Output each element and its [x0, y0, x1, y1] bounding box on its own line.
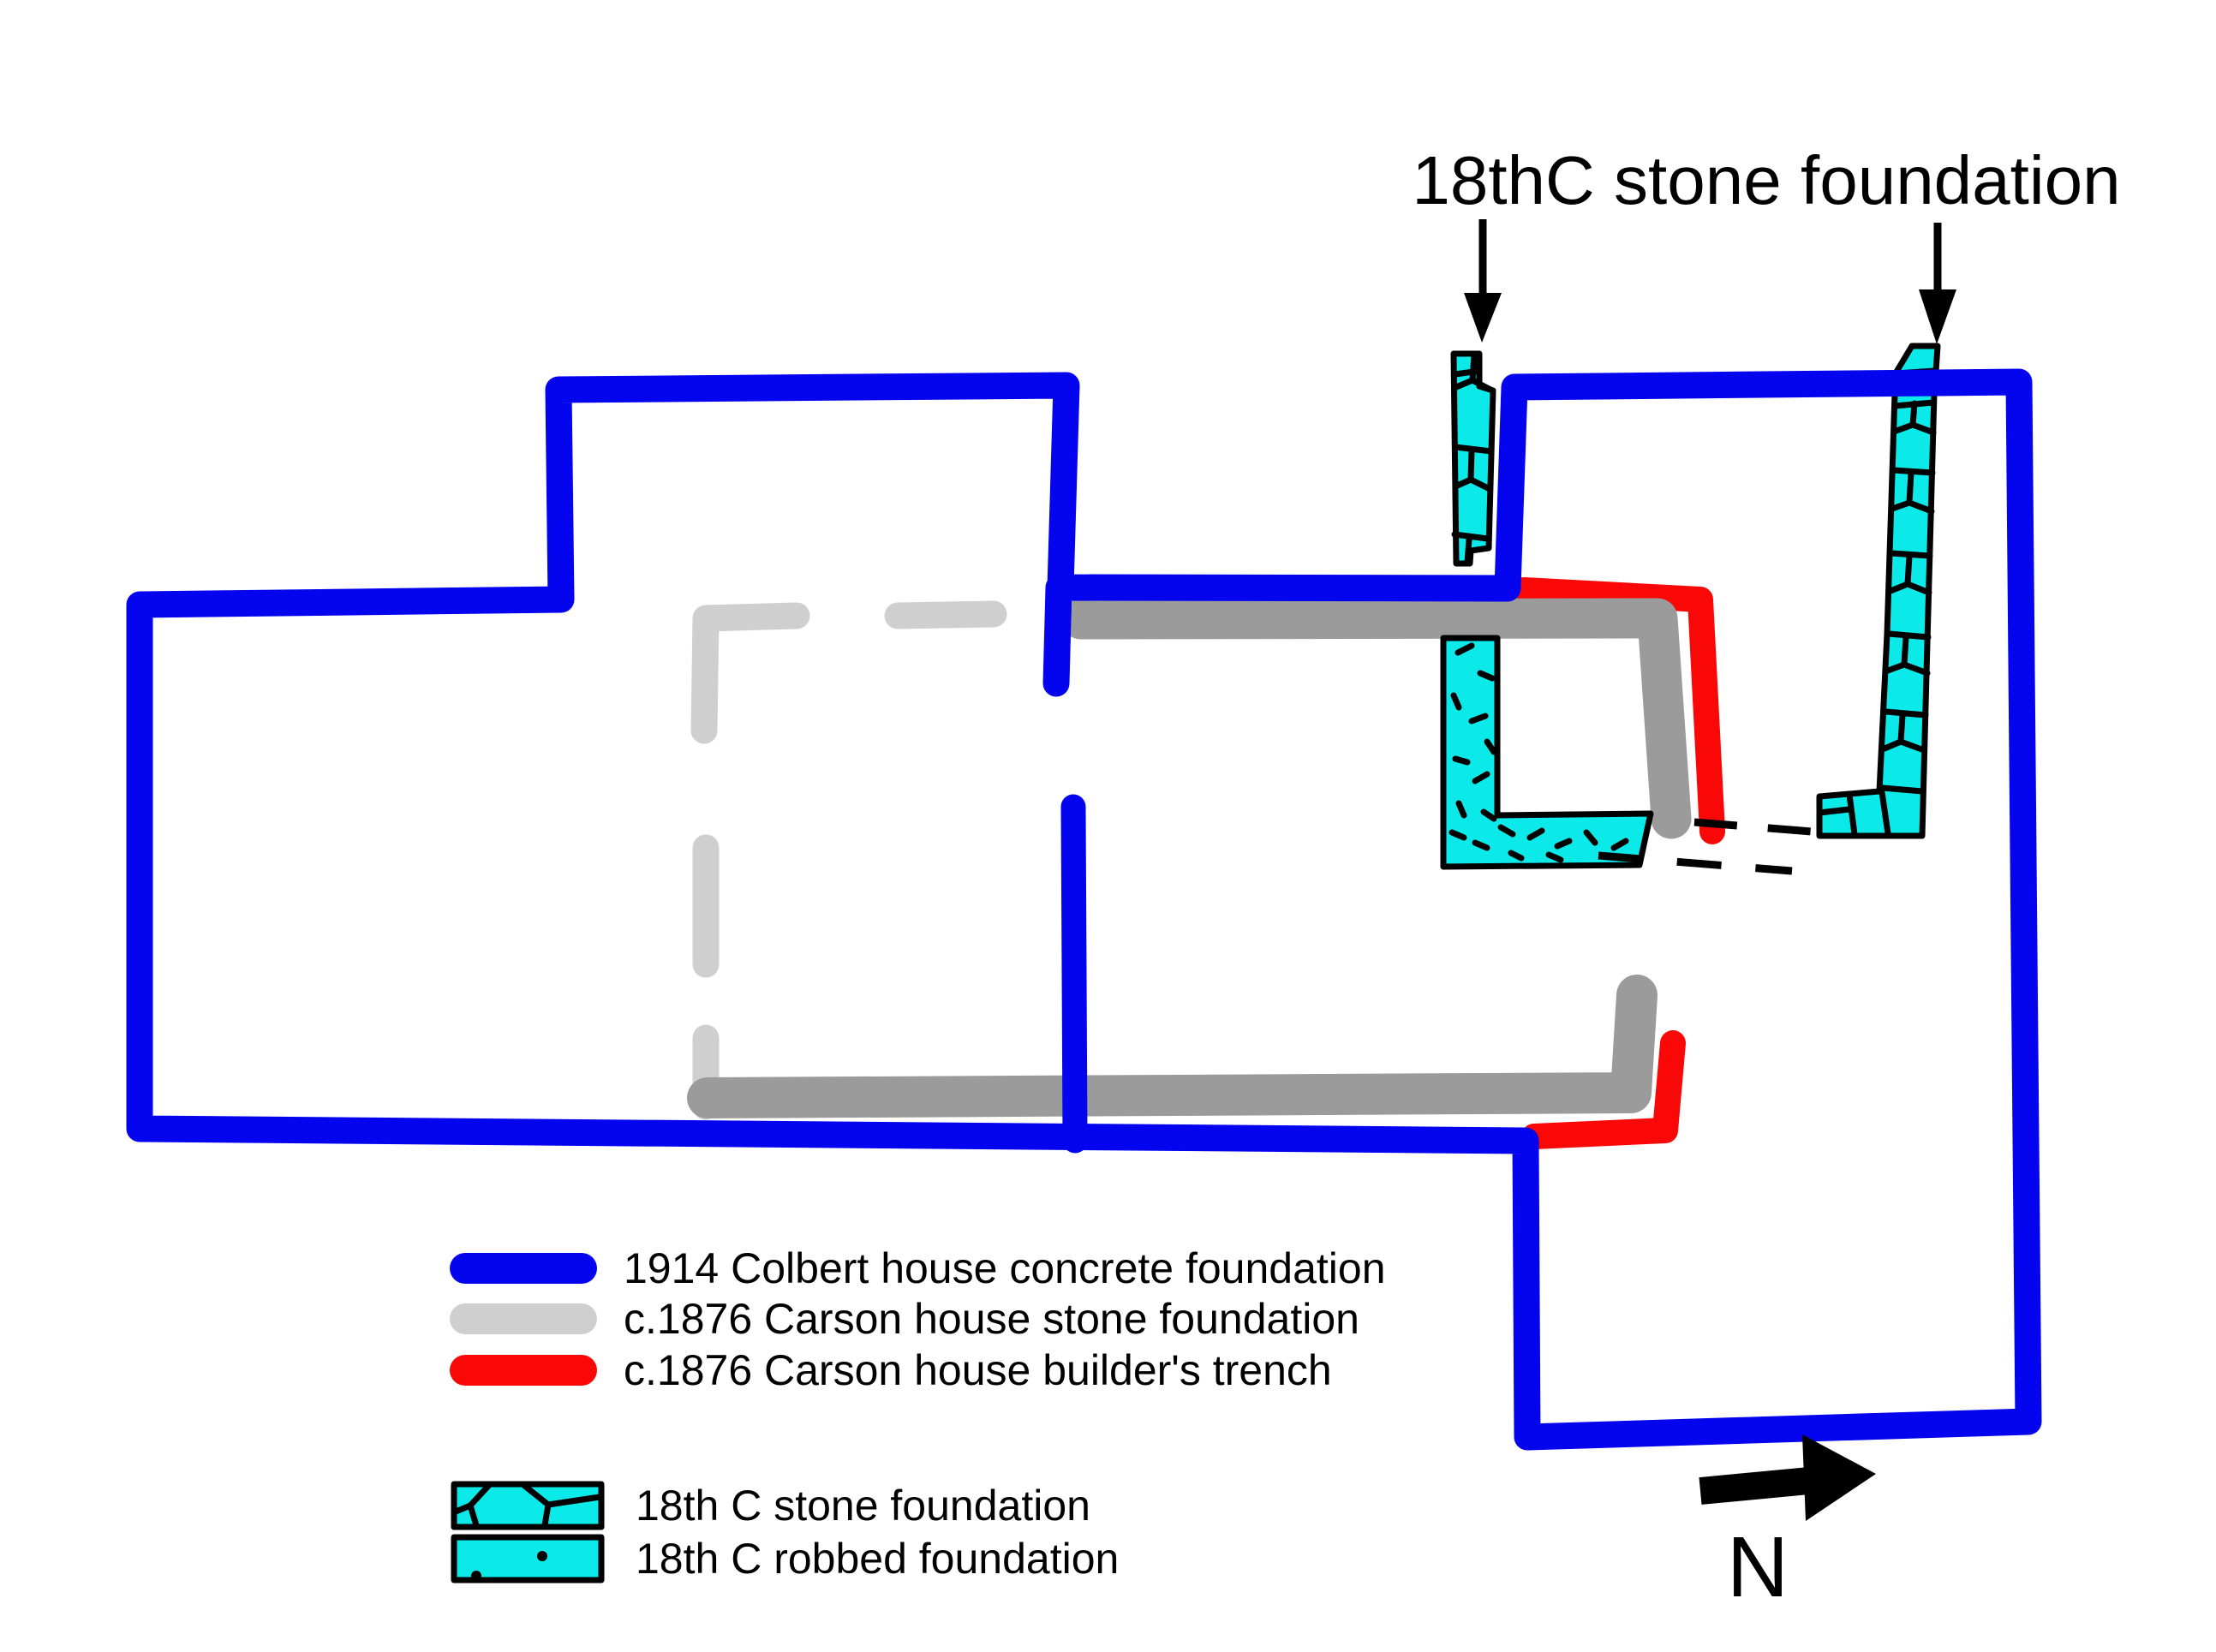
legend-lines: 1914 Colbert house concrete foundation c… [450, 1244, 1386, 1394]
leader-arrow-east [1919, 223, 1956, 344]
dashed-wall-corner [704, 616, 797, 731]
dashed-wall-segment [898, 614, 994, 616]
north-arrow: N [1700, 1434, 1876, 1615]
legend-label-concrete: 1914 Colbert house concrete foundation [624, 1244, 1386, 1292]
site-plan-figure: 18thC stone foundation 1914 Colbert hous… [0, 0, 2216, 1652]
north-label: N [1727, 1519, 1789, 1615]
arrowhead-down-icon [1464, 293, 1502, 343]
leader-arrow-west [1464, 219, 1502, 343]
legend-label-stone: c.1876 Carson house stone foundation [624, 1295, 1359, 1343]
legend-patches: 18th C stone foundation 18th C robbed fo… [454, 1482, 1119, 1583]
north-arrowhead-icon [1802, 1434, 1876, 1521]
north-arrow-shaft [1700, 1481, 1809, 1491]
stone-wall-upper [1081, 618, 1671, 819]
legend-swatch-concrete [450, 1253, 597, 1284]
title-annotation: 18thC stone foundation [1412, 142, 2120, 344]
robbed-foundation-shape [1443, 638, 1651, 867]
stone-wall-lower [708, 995, 1637, 1098]
carson-stone-foundation-dashed [704, 614, 994, 1106]
figure-title: 18thC stone foundation [1412, 142, 2120, 218]
colbert-interior-partition [1073, 807, 1075, 1141]
arrowhead-down-icon [1919, 289, 1956, 344]
robbed-foundation [1443, 638, 1651, 867]
legend-swatch-trench [450, 1355, 597, 1386]
legend-label-robbed-patch: 18th C robbed foundation [636, 1535, 1119, 1583]
colbert-wall-stub [1056, 587, 1059, 683]
legend-label-stone-patch: 18th C stone foundation [636, 1482, 1090, 1530]
legend-swatch-stone [450, 1303, 597, 1334]
legend-label-trench: c.1876 Carson house builder's trench [624, 1346, 1332, 1394]
